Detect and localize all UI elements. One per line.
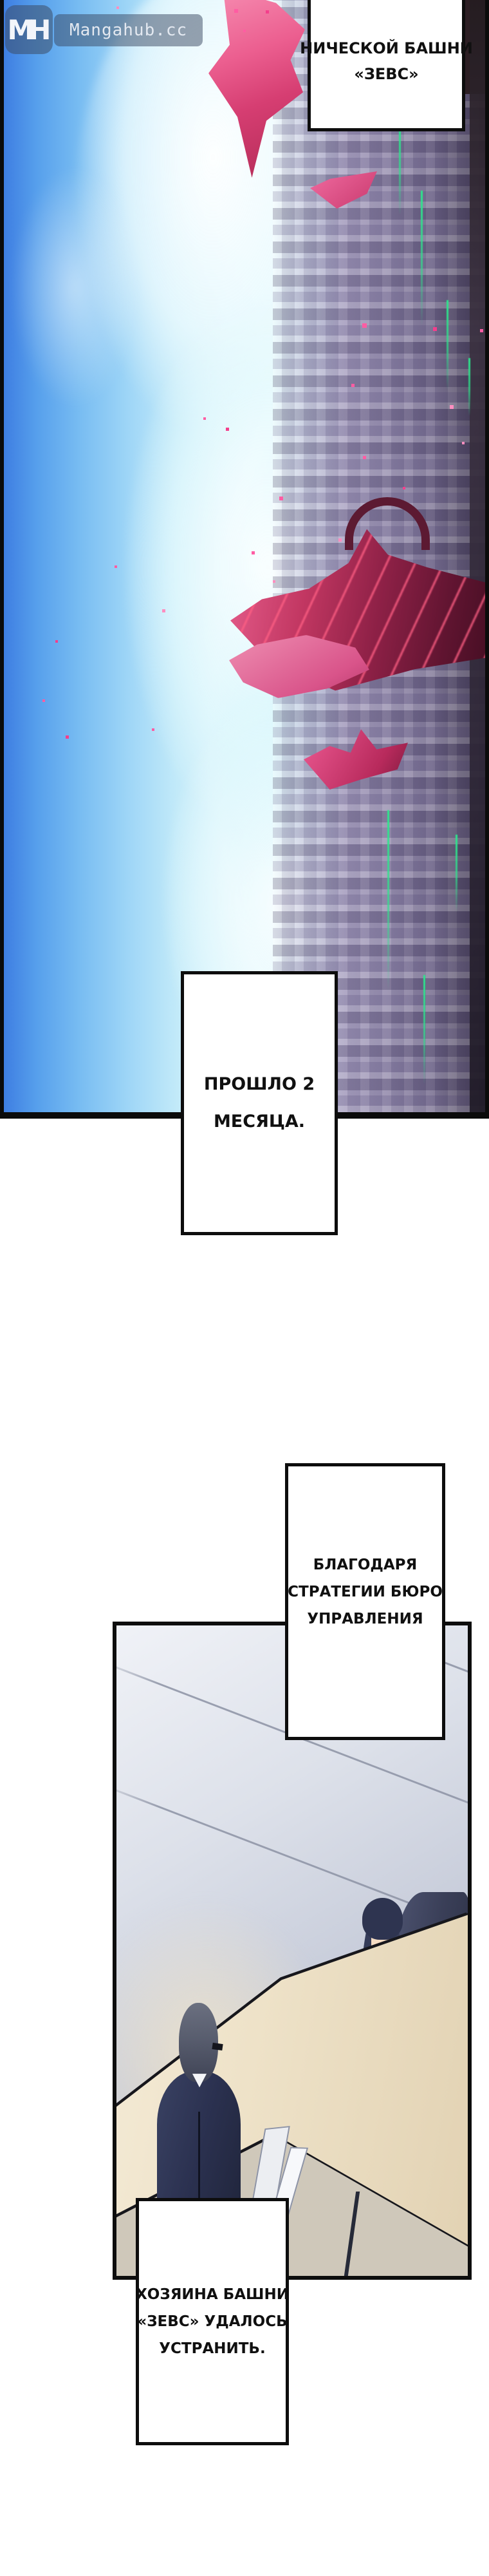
caption-line: МЕСЯЦА. xyxy=(214,1103,305,1141)
pink-particle xyxy=(234,9,238,13)
pink-particle xyxy=(243,30,246,32)
panel-city-sky xyxy=(0,0,489,1119)
mangahub-logo-icon: MH xyxy=(5,5,53,54)
pink-particle xyxy=(162,609,165,612)
caption-line: НИЧЕСКОЙ БАШНИ xyxy=(300,35,473,61)
caption-line: «ЗЕВС» xyxy=(354,61,418,87)
pink-particle xyxy=(480,329,483,332)
pink-particle xyxy=(362,323,367,328)
pink-particle xyxy=(338,538,342,542)
neon-green-line xyxy=(423,975,425,1084)
pink-particle xyxy=(55,640,58,643)
neon-green-line xyxy=(468,358,470,416)
pink-particle xyxy=(279,497,283,500)
site-name: Mangahub.cc xyxy=(69,21,187,40)
caption-line: ХОЗЯИНА БАШНИ xyxy=(136,2281,289,2308)
pink-particle xyxy=(42,699,45,702)
neon-green-line xyxy=(456,835,457,912)
caption-box-3: БЛАГОДАРЯ СТРАТЕГИИ БЮРО УПРАВЛЕНИЯ xyxy=(285,1463,445,1740)
wreck-arc xyxy=(345,497,430,550)
site-name-badge: Mangahub.cc xyxy=(54,14,203,46)
pink-particle xyxy=(351,384,355,387)
pink-particle xyxy=(273,580,275,583)
caption-line: БЛАГОДАРЯ xyxy=(313,1551,418,1578)
pink-particle xyxy=(363,456,366,459)
pink-particle xyxy=(450,405,454,409)
logo-monogram: MH xyxy=(8,14,46,46)
man-head xyxy=(179,2003,217,2082)
neon-green-line xyxy=(399,118,401,215)
pink-particle xyxy=(462,442,465,444)
caption-box-1: НИЧЕСКОЙ БАШНИ «ЗЕВС» xyxy=(308,0,465,131)
pink-particle xyxy=(203,417,206,420)
caption-line: УПРАВЛЕНИЯ xyxy=(307,1605,423,1633)
cloud xyxy=(10,165,139,410)
caption-line: УСТРАНИТЬ. xyxy=(159,2335,265,2362)
pink-particle xyxy=(403,487,405,489)
pink-particle xyxy=(433,327,437,331)
caption-line: ПРОШЛО 2 xyxy=(204,1066,315,1103)
caption-box-4: ХОЗЯИНА БАШНИ «ЗЕВС» УДАЛОСЬ УСТРАНИТЬ. xyxy=(136,2198,289,2445)
site-watermark: MH Mangahub.cc xyxy=(5,5,203,54)
pink-particle xyxy=(115,565,117,568)
caption-box-2: ПРОШЛО 2 МЕСЯЦА. xyxy=(181,971,338,1235)
caption-line: СТРАТЕГИИ БЮРО xyxy=(288,1578,443,1605)
pink-particle xyxy=(66,735,69,739)
neon-green-line xyxy=(447,300,448,390)
webtoon-page: MH Mangahub.cc НИЧЕСКОЙ БАШНИ «ЗЕВС» ПРО… xyxy=(0,0,489,2576)
caption-line: «ЗЕВС» УДАЛОСЬ xyxy=(137,2308,287,2335)
pink-particle xyxy=(152,728,154,731)
pink-particle xyxy=(226,428,229,431)
pink-particle xyxy=(252,551,255,554)
pink-particle xyxy=(266,10,269,14)
neon-green-line xyxy=(387,810,389,990)
neon-green-line xyxy=(421,191,423,326)
